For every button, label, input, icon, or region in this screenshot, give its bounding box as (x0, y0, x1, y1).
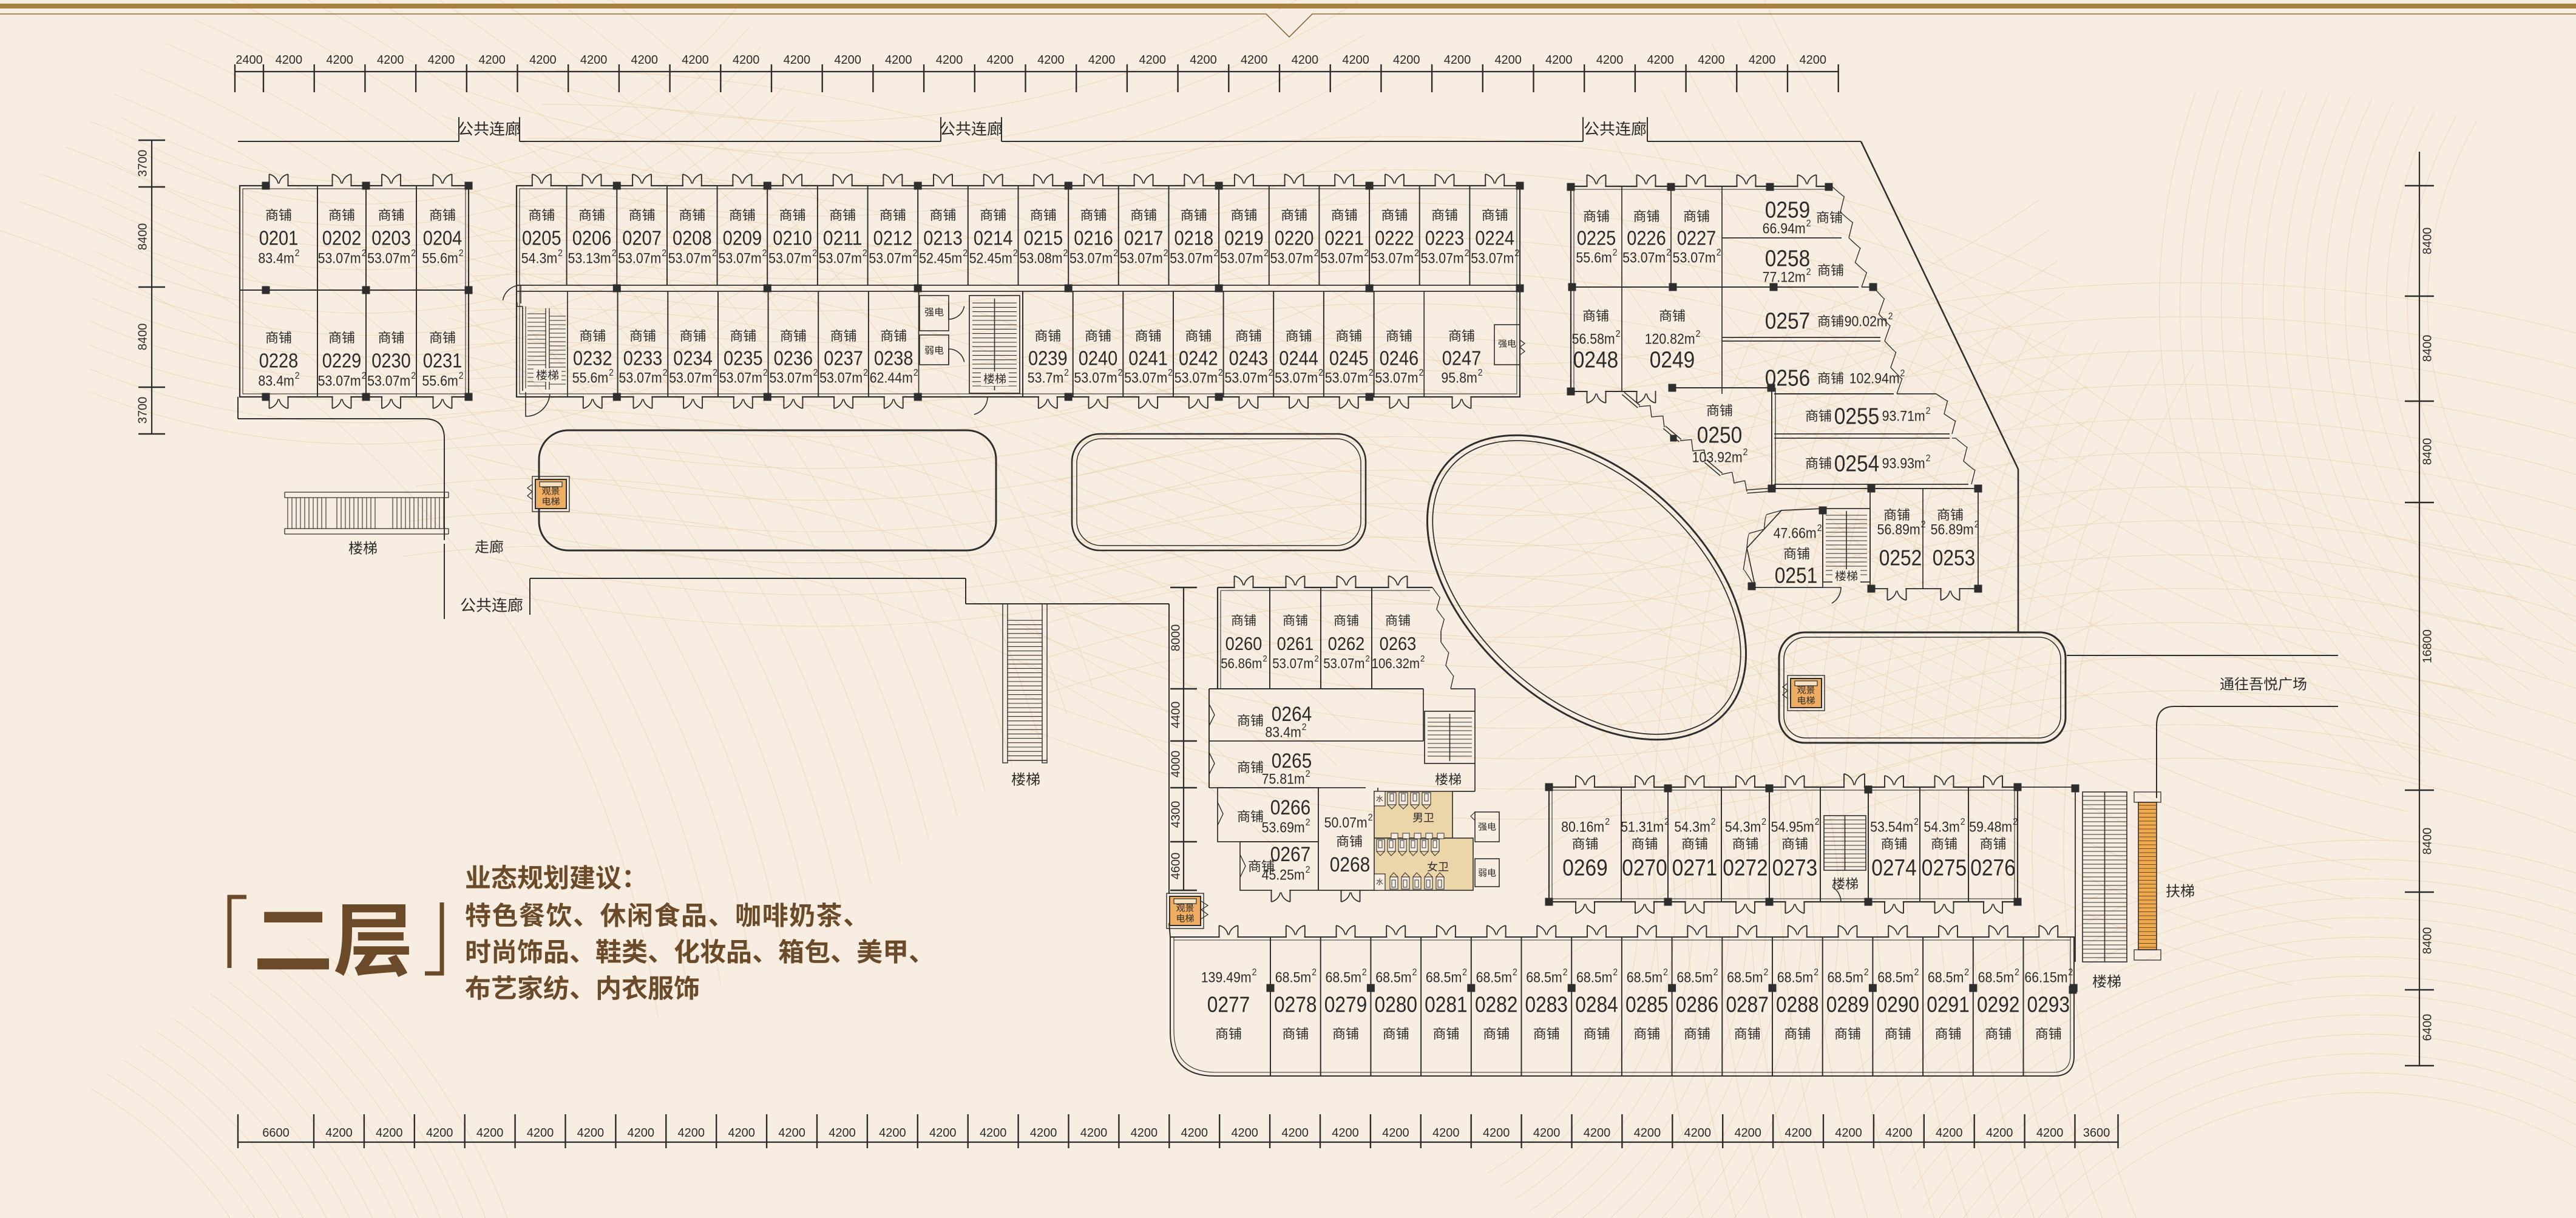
svg-text:4200: 4200 (376, 1126, 403, 1140)
svg-text:4200: 4200 (1332, 1126, 1359, 1140)
svg-text:0270: 0270 (1622, 855, 1667, 881)
svg-text:68.5m: 68.5m (1928, 969, 1964, 986)
svg-text:0211: 0211 (823, 227, 863, 249)
svg-text:0219: 0219 (1224, 227, 1264, 249)
svg-text:0283: 0283 (1525, 992, 1568, 1017)
svg-text:2: 2 (1306, 865, 1310, 875)
svg-text:53.07m: 53.07m (1174, 370, 1218, 386)
svg-text:4200: 4200 (1785, 1126, 1812, 1140)
svg-text:0206: 0206 (572, 227, 612, 249)
svg-text:0225: 0225 (1577, 227, 1616, 249)
svg-text:2: 2 (1563, 967, 1568, 978)
svg-text:0218: 0218 (1174, 227, 1214, 249)
svg-text:4200: 4200 (728, 1126, 755, 1140)
svg-text:4200: 4200 (1030, 1126, 1057, 1140)
svg-text:2: 2 (763, 368, 768, 378)
svg-text:4200: 4200 (1596, 53, 1624, 67)
svg-text:2: 2 (1806, 267, 1811, 277)
svg-text:2: 2 (713, 368, 717, 378)
svg-text:8400: 8400 (2421, 927, 2434, 955)
svg-text:0291: 0291 (1927, 992, 1970, 1017)
svg-text:0213: 0213 (923, 227, 963, 249)
svg-text:4200: 4200 (628, 1126, 655, 1140)
svg-text:2: 2 (1900, 368, 1905, 379)
svg-text:2: 2 (295, 248, 300, 259)
svg-text:0233: 0233 (623, 347, 663, 370)
svg-text:52.45m: 52.45m (919, 250, 962, 266)
svg-text:2: 2 (362, 371, 367, 381)
svg-text:0261: 0261 (1277, 633, 1314, 654)
svg-text:2: 2 (411, 248, 416, 259)
svg-text:83.4m: 83.4m (258, 373, 294, 389)
svg-text:8400: 8400 (2421, 828, 2434, 855)
svg-text:4200: 4200 (1393, 53, 1420, 67)
svg-text:4200: 4200 (276, 53, 303, 67)
svg-text:53.07m: 53.07m (1325, 370, 1368, 386)
svg-text:2: 2 (1764, 967, 1769, 978)
svg-text:0290: 0290 (1877, 992, 1920, 1017)
svg-text:2: 2 (1666, 248, 1671, 258)
svg-text:0253: 0253 (1933, 546, 1976, 570)
svg-text:4200: 4200 (1734, 1126, 1761, 1140)
svg-text:4200: 4200 (1281, 1126, 1309, 1140)
svg-text:2: 2 (1312, 967, 1317, 978)
svg-text:0269: 0269 (1562, 855, 1607, 881)
svg-text:0217: 0217 (1124, 227, 1164, 249)
svg-text:139.49m: 139.49m (1201, 969, 1252, 986)
svg-text:53.07m: 53.07m (1471, 250, 1514, 266)
svg-text:0247: 0247 (1442, 347, 1482, 370)
svg-text:2: 2 (1814, 967, 1818, 978)
svg-text:0224: 0224 (1475, 227, 1514, 249)
svg-text:50.07m: 50.07m (1324, 814, 1368, 831)
svg-text:6600: 6600 (262, 1126, 290, 1140)
svg-text:68.5m: 68.5m (1777, 969, 1813, 986)
svg-text:54.3m: 54.3m (1674, 819, 1710, 835)
svg-text:2: 2 (1613, 248, 1618, 258)
svg-text:53.69m: 53.69m (1262, 819, 1305, 836)
svg-text:4200: 4200 (1181, 1126, 1208, 1140)
svg-text:4200: 4200 (885, 53, 912, 67)
svg-text:0210: 0210 (773, 227, 812, 249)
svg-text:6400: 6400 (2421, 1014, 2434, 1041)
svg-text:2: 2 (609, 368, 614, 378)
svg-text:4200: 4200 (936, 53, 963, 67)
svg-text:2: 2 (1713, 967, 1718, 978)
svg-text:4200: 4200 (580, 53, 608, 67)
svg-text:68.5m: 68.5m (1326, 969, 1361, 986)
svg-text:0289: 0289 (1826, 992, 1869, 1017)
svg-text:0234: 0234 (673, 347, 713, 370)
svg-text:4200: 4200 (1885, 1126, 1913, 1140)
svg-text:53.07m: 53.07m (619, 370, 662, 386)
svg-text:4200: 4200 (986, 53, 1014, 67)
svg-text:53.08m: 53.08m (1019, 250, 1062, 266)
svg-text:95.8m: 95.8m (1441, 370, 1477, 386)
svg-text:2: 2 (1961, 817, 1965, 827)
svg-text:4000: 4000 (1169, 751, 1182, 778)
svg-text:0215: 0215 (1024, 227, 1063, 249)
svg-text:2: 2 (1252, 967, 1257, 978)
svg-text:4200: 4200 (1483, 1126, 1510, 1140)
svg-text:90.02m: 90.02m (1845, 313, 1888, 330)
svg-text:2: 2 (1419, 368, 1424, 378)
svg-text:53.07m: 53.07m (1220, 250, 1263, 266)
svg-text:68.5m: 68.5m (1727, 969, 1763, 986)
svg-text:0279: 0279 (1324, 992, 1368, 1017)
svg-text:47.66m: 47.66m (1774, 525, 1817, 541)
svg-text:2: 2 (1063, 248, 1068, 259)
svg-text:55.6m: 55.6m (422, 373, 458, 389)
svg-text:0282: 0282 (1475, 992, 1518, 1017)
svg-text:4200: 4200 (1545, 53, 1573, 67)
svg-text:2: 2 (459, 248, 464, 259)
svg-text:4200: 4200 (426, 1126, 453, 1140)
svg-text:2: 2 (1864, 967, 1869, 978)
svg-text:0292: 0292 (1977, 992, 2020, 1017)
svg-text:2: 2 (1368, 813, 1373, 823)
svg-text:53.07m: 53.07m (719, 370, 762, 386)
svg-text:0250: 0250 (1697, 422, 1742, 448)
svg-text:2: 2 (1926, 453, 1931, 464)
svg-text:0285: 0285 (1625, 992, 1669, 1017)
svg-text:0281: 0281 (1425, 992, 1468, 1017)
svg-text:2: 2 (1743, 447, 1748, 458)
svg-text:4200: 4200 (631, 53, 659, 67)
svg-text:2: 2 (712, 248, 717, 259)
svg-text:4200: 4200 (1444, 53, 1471, 67)
svg-text:0238: 0238 (874, 347, 913, 370)
svg-text:53.07m: 53.07m (1320, 250, 1363, 266)
svg-text:0229: 0229 (322, 350, 362, 372)
svg-text:4400: 4400 (1169, 702, 1182, 729)
svg-text:2: 2 (1365, 654, 1369, 664)
svg-text:2: 2 (1921, 519, 1926, 530)
svg-text:4200: 4200 (1634, 1126, 1661, 1140)
svg-text:4200: 4200 (377, 53, 404, 67)
svg-text:2: 2 (1513, 967, 1517, 978)
svg-text:4200: 4200 (1131, 1126, 1158, 1140)
svg-text:16800: 16800 (2421, 629, 2434, 663)
svg-text:2: 2 (1218, 368, 1223, 378)
svg-text:120.82m: 120.82m (1645, 331, 1695, 347)
svg-text:4200: 4200 (1835, 1126, 1862, 1140)
svg-text:4200: 4200 (879, 1126, 906, 1140)
svg-text:68.5m: 68.5m (1275, 969, 1311, 986)
svg-text:2: 2 (2015, 967, 2019, 978)
svg-text:2: 2 (1420, 654, 1425, 664)
svg-text:4200: 4200 (1241, 53, 1268, 67)
svg-text:4200: 4200 (1190, 53, 1217, 67)
svg-text:2: 2 (1064, 368, 1069, 378)
svg-text:2: 2 (1462, 967, 1467, 978)
svg-text:54.3m: 54.3m (1725, 819, 1761, 835)
svg-text:2: 2 (1168, 368, 1173, 378)
svg-text:0235: 0235 (724, 347, 763, 370)
svg-text:68.5m: 68.5m (1676, 969, 1712, 986)
svg-text:45.25m: 45.25m (1262, 867, 1305, 883)
svg-text:2: 2 (1113, 248, 1118, 259)
svg-text:0280: 0280 (1375, 992, 1418, 1017)
svg-text:0271: 0271 (1672, 855, 1717, 881)
svg-text:2: 2 (913, 248, 918, 259)
svg-text:2: 2 (1605, 817, 1610, 827)
svg-text:2: 2 (1264, 248, 1269, 259)
svg-text:4200: 4200 (1037, 53, 1065, 67)
svg-text:54.3m: 54.3m (1924, 819, 1959, 835)
svg-text:0236: 0236 (774, 347, 813, 370)
svg-text:4200: 4200 (682, 53, 709, 67)
svg-text:2: 2 (1314, 654, 1318, 664)
svg-text:55.6m: 55.6m (422, 250, 458, 266)
svg-text:53.07m: 53.07m (1074, 370, 1117, 386)
svg-text:2: 2 (662, 248, 666, 259)
svg-text:54.3m: 54.3m (521, 250, 557, 266)
svg-text:80.16m: 80.16m (1561, 819, 1604, 835)
svg-text:4200: 4200 (784, 53, 811, 67)
svg-text:0201: 0201 (259, 227, 299, 249)
svg-text:0257: 0257 (1765, 308, 1810, 334)
svg-text:2: 2 (1314, 248, 1319, 259)
svg-text:4200: 4200 (929, 1126, 957, 1140)
svg-text:93.71m: 93.71m (1882, 408, 1925, 424)
svg-text:2: 2 (362, 248, 367, 259)
svg-text:0284: 0284 (1575, 992, 1618, 1017)
svg-text:0288: 0288 (1776, 992, 1819, 1017)
svg-text:2: 2 (913, 368, 918, 378)
svg-text:0227: 0227 (1677, 227, 1717, 249)
svg-text:0230: 0230 (371, 350, 411, 372)
svg-text:0205: 0205 (522, 227, 561, 249)
svg-text:2: 2 (558, 248, 563, 259)
svg-text:4200: 4200 (1494, 53, 1522, 67)
svg-text:53.07m: 53.07m (668, 250, 711, 266)
svg-text:0252: 0252 (1879, 546, 1922, 570)
svg-text:2: 2 (1362, 967, 1367, 978)
svg-text:0255: 0255 (1834, 404, 1879, 429)
svg-text:56.86m: 56.86m (1221, 655, 1262, 671)
svg-text:4200: 4200 (2036, 1126, 2064, 1140)
svg-text:0260: 0260 (1225, 633, 1263, 654)
svg-text:0222: 0222 (1375, 227, 1414, 249)
svg-text:4200: 4200 (1342, 53, 1369, 67)
svg-text:68.5m: 68.5m (1877, 969, 1913, 986)
svg-text:4200: 4200 (577, 1126, 605, 1140)
svg-text:53.07m: 53.07m (669, 370, 712, 386)
svg-text:4200: 4200 (1698, 53, 1725, 67)
svg-text:53.07m: 53.07m (367, 373, 410, 389)
svg-text:66.15m: 66.15m (2024, 969, 2067, 986)
svg-text:2: 2 (1964, 967, 1969, 978)
svg-text:4200: 4200 (1986, 1126, 2013, 1140)
svg-text:0274: 0274 (1871, 855, 1916, 881)
svg-text:4200: 4200 (1647, 53, 1674, 67)
svg-text:0268: 0268 (1330, 853, 1371, 876)
svg-text:2: 2 (1974, 519, 1979, 530)
svg-text:0251: 0251 (1775, 563, 1818, 588)
svg-text:4200: 4200 (834, 53, 861, 67)
svg-text:53.07m: 53.07m (819, 250, 862, 266)
svg-text:0245: 0245 (1329, 347, 1369, 370)
svg-text:4200: 4200 (1432, 1126, 1460, 1140)
svg-text:0223: 0223 (1425, 227, 1465, 249)
svg-text:53.07m: 53.07m (318, 250, 361, 266)
svg-text:0272: 0272 (1723, 855, 1768, 881)
svg-text:53.07m: 53.07m (1225, 370, 1268, 386)
svg-text:0276: 0276 (1970, 855, 2015, 881)
svg-text:4200: 4200 (1292, 53, 1319, 67)
svg-text:2: 2 (1164, 248, 1168, 259)
svg-text:0249: 0249 (1650, 347, 1695, 373)
svg-text:53.07m: 53.07m (1270, 250, 1313, 266)
svg-text:2: 2 (1817, 523, 1822, 533)
svg-text:53.07m: 53.07m (768, 250, 812, 266)
svg-text:83.4m: 83.4m (258, 250, 294, 266)
svg-text:8400: 8400 (136, 323, 149, 351)
svg-text:4200: 4200 (778, 1126, 805, 1140)
svg-text:0204: 0204 (423, 227, 463, 249)
svg-text:2: 2 (1302, 722, 1307, 732)
svg-text:4200: 4200 (529, 53, 557, 67)
svg-text:68.5m: 68.5m (1828, 969, 1863, 986)
svg-text:56.89m: 56.89m (1877, 521, 1920, 538)
svg-text:4200: 4200 (326, 53, 353, 67)
svg-text:102.94m: 102.94m (1849, 370, 1900, 387)
svg-text:53.07m: 53.07m (1275, 370, 1318, 386)
svg-text:2: 2 (1613, 967, 1618, 978)
svg-text:0207: 0207 (622, 227, 662, 249)
svg-text:75.81m: 75.81m (1262, 771, 1305, 787)
svg-text:2: 2 (1414, 248, 1419, 259)
svg-text:2: 2 (1761, 817, 1766, 827)
svg-text:0216: 0216 (1074, 227, 1113, 249)
svg-text:0267: 0267 (1270, 843, 1311, 866)
svg-text:8400: 8400 (2421, 438, 2434, 465)
svg-text:4200: 4200 (980, 1126, 1007, 1140)
svg-text:4200: 4200 (1231, 1126, 1258, 1140)
svg-text:2: 2 (1364, 248, 1369, 259)
svg-text:8400: 8400 (136, 223, 149, 251)
svg-text:2: 2 (1806, 218, 1811, 229)
svg-text:2: 2 (1013, 248, 1018, 259)
svg-text:2: 2 (295, 371, 300, 381)
svg-text:2: 2 (2069, 967, 2073, 978)
svg-text:68.5m: 68.5m (1426, 969, 1462, 986)
svg-text:2: 2 (812, 248, 817, 259)
svg-text:4200: 4200 (478, 53, 506, 67)
svg-text:4200: 4200 (1533, 1126, 1561, 1140)
svg-text:68.5m: 68.5m (1526, 969, 1562, 986)
svg-text:0231: 0231 (423, 350, 463, 372)
svg-text:0262: 0262 (1328, 633, 1365, 654)
svg-text:0246: 0246 (1380, 347, 1419, 370)
svg-text:0232: 0232 (573, 347, 612, 370)
svg-text:0259: 0259 (1765, 197, 1810, 223)
svg-text:8000: 8000 (1169, 624, 1182, 652)
svg-text:2: 2 (1914, 817, 1919, 827)
svg-text:52.45m: 52.45m (969, 250, 1012, 266)
svg-text:106.32m: 106.32m (1372, 655, 1420, 671)
svg-text:8400: 8400 (2421, 335, 2434, 362)
svg-text:3700: 3700 (136, 150, 149, 177)
svg-text:2: 2 (1815, 817, 1820, 827)
svg-text:2: 2 (1269, 368, 1273, 378)
svg-text:0287: 0287 (1726, 992, 1769, 1017)
svg-text:2: 2 (1214, 248, 1219, 259)
svg-text:2: 2 (1663, 967, 1668, 978)
svg-text:4200: 4200 (325, 1126, 353, 1140)
svg-text:2: 2 (1888, 311, 1893, 322)
svg-text:0209: 0209 (723, 227, 762, 249)
svg-text:0241: 0241 (1128, 347, 1168, 370)
svg-text:53.07m: 53.07m (1120, 250, 1163, 266)
svg-text:4600: 4600 (1169, 853, 1182, 880)
svg-text:53.54m: 53.54m (1870, 819, 1913, 835)
svg-text:0263: 0263 (1380, 633, 1417, 654)
svg-text:0212: 0212 (873, 227, 913, 249)
svg-text:53.07m: 53.07m (1673, 249, 1716, 266)
svg-text:53.07m: 53.07m (367, 250, 410, 266)
svg-text:4300: 4300 (1169, 801, 1182, 828)
svg-text:4200: 4200 (1936, 1126, 1963, 1140)
svg-text:68.5m: 68.5m (1375, 969, 1411, 986)
svg-text:0286: 0286 (1676, 992, 1719, 1017)
svg-text:3700: 3700 (136, 397, 149, 424)
svg-text:2: 2 (411, 371, 416, 381)
svg-text:0220: 0220 (1275, 227, 1314, 249)
svg-text:4200: 4200 (678, 1126, 705, 1140)
svg-text:0254: 0254 (1834, 451, 1879, 476)
svg-text:53.07m: 53.07m (1069, 250, 1113, 266)
svg-text:8400: 8400 (2421, 228, 2434, 255)
svg-text:2: 2 (1412, 967, 1417, 978)
svg-text:53.07m: 53.07m (1622, 249, 1666, 266)
svg-text:2: 2 (762, 248, 767, 259)
svg-text:53.07m: 53.07m (1421, 250, 1464, 266)
svg-text:0273: 0273 (1772, 855, 1817, 881)
svg-text:0243: 0243 (1229, 347, 1269, 370)
svg-text:2: 2 (1478, 368, 1483, 378)
svg-text:0240: 0240 (1079, 347, 1118, 370)
svg-text:2: 2 (1926, 406, 1931, 416)
svg-text:2: 2 (1914, 967, 1919, 978)
svg-text:53.07m: 53.07m (1124, 370, 1167, 386)
svg-text:2: 2 (1514, 248, 1519, 259)
svg-text:56.58m: 56.58m (1572, 331, 1615, 347)
svg-text:53.7m: 53.7m (1028, 370, 1063, 386)
svg-text:0293: 0293 (2027, 992, 2070, 1017)
svg-text:0258: 0258 (1765, 246, 1810, 271)
svg-text:68.5m: 68.5m (1627, 969, 1663, 986)
svg-text:2: 2 (1263, 654, 1267, 664)
svg-text:68.5m: 68.5m (1576, 969, 1612, 986)
svg-text:2: 2 (1465, 248, 1469, 259)
svg-text:53.07m: 53.07m (1272, 655, 1313, 671)
svg-text:0202: 0202 (322, 227, 362, 249)
svg-text:4200: 4200 (1139, 53, 1167, 67)
svg-text:0221: 0221 (1324, 227, 1364, 249)
svg-text:51.31m: 51.31m (1621, 819, 1664, 835)
svg-text:53.07m: 53.07m (770, 370, 813, 386)
svg-text:4200: 4200 (733, 53, 760, 67)
svg-text:0242: 0242 (1179, 347, 1218, 370)
svg-text:62.44m: 62.44m (870, 370, 913, 386)
svg-text:0278: 0278 (1274, 992, 1317, 1017)
svg-text:2: 2 (2013, 817, 2018, 827)
svg-text:2: 2 (1306, 817, 1310, 828)
svg-text:53.07m: 53.07m (1375, 370, 1418, 386)
svg-text:4200: 4200 (1684, 1126, 1712, 1140)
